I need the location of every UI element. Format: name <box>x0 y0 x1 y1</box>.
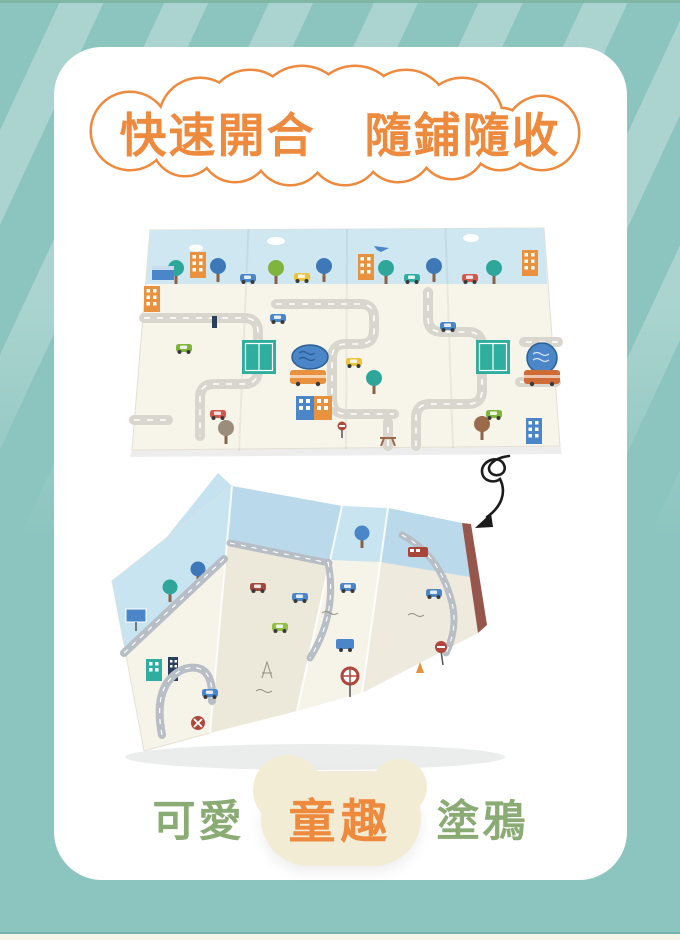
caption-prefix: 可愛 <box>153 787 245 849</box>
bus <box>290 370 326 386</box>
traffic-light <box>212 316 217 328</box>
top-divider <box>0 0 680 3</box>
pool <box>292 345 328 369</box>
tennis-court <box>476 340 510 374</box>
caption: 可愛 童趣 塗鴉 <box>54 763 627 873</box>
content-card: 快速開合 隨鋪隨收 <box>54 47 627 880</box>
bus <box>524 370 560 386</box>
caption-highlight: 童趣 <box>289 795 393 848</box>
bottom-divider <box>0 934 680 940</box>
headline-cloud: 快速開合 隨鋪隨收 <box>80 75 600 185</box>
city-building <box>296 396 332 420</box>
pool <box>527 343 557 373</box>
tennis-court <box>242 340 276 374</box>
caption-highlight-bubble: 童趣 <box>261 771 421 866</box>
play-mat-unfolded-illustration <box>126 224 566 459</box>
caption-suffix: 塗鴉 <box>437 787 529 849</box>
play-mat-folded-illustration <box>110 463 548 775</box>
headline-text: 快速開合 隨鋪隨收 <box>80 75 600 185</box>
